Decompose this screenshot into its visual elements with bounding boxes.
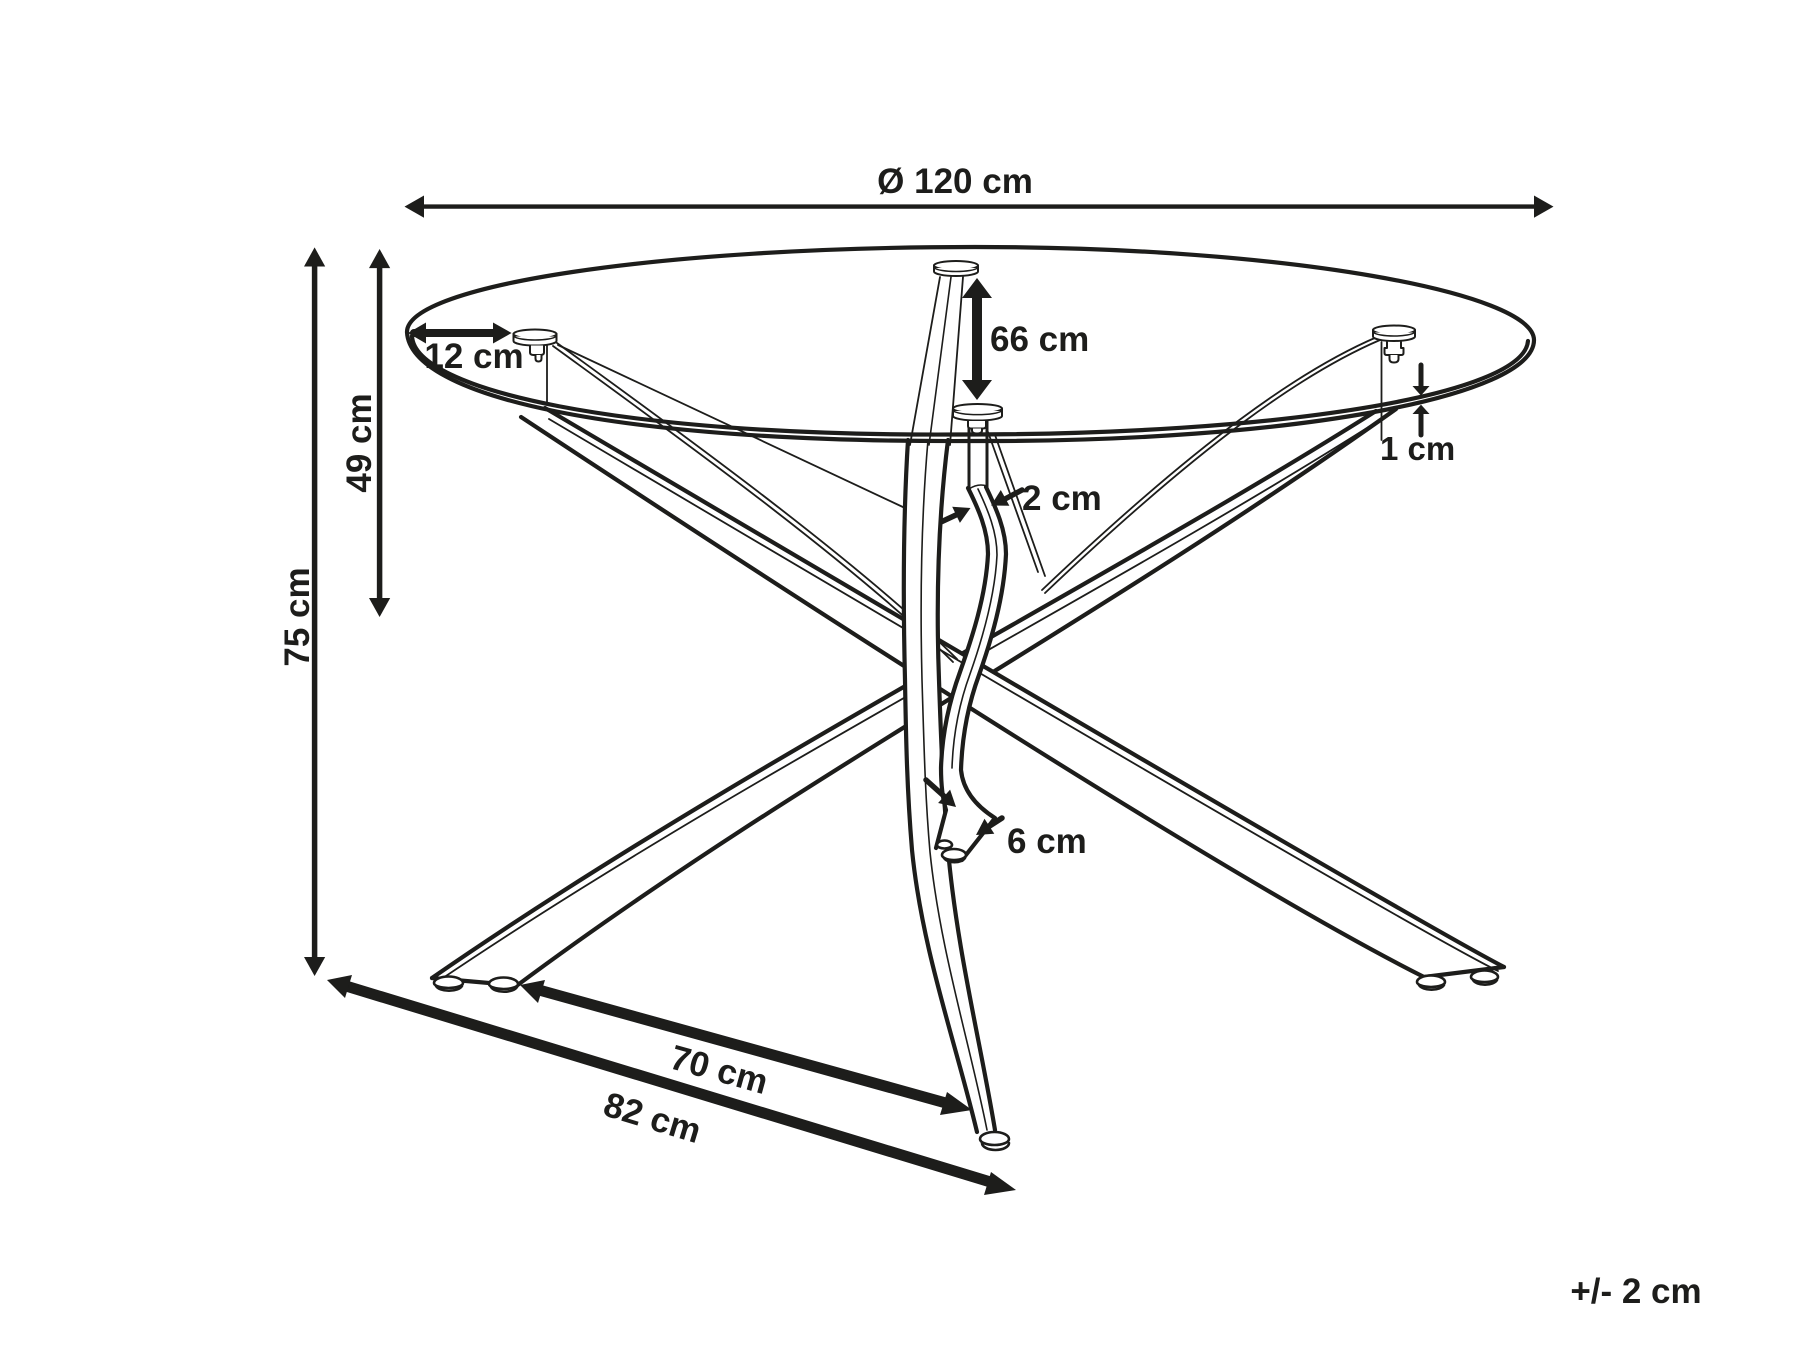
svg-text:66 cm: 66 cm bbox=[990, 320, 1089, 359]
svg-text:6 cm: 6 cm bbox=[1007, 822, 1087, 861]
svg-text:Ø 120 cm: Ø 120 cm bbox=[877, 162, 1033, 201]
svg-text:49 cm: 49 cm bbox=[340, 393, 379, 492]
svg-text:75 cm: 75 cm bbox=[278, 567, 317, 666]
svg-text:12 cm: 12 cm bbox=[424, 337, 523, 376]
svg-text:+/- 2 cm: +/- 2 cm bbox=[1570, 1272, 1701, 1311]
svg-text:2 cm: 2 cm bbox=[1022, 479, 1102, 518]
svg-text:1 cm: 1 cm bbox=[1380, 430, 1455, 467]
